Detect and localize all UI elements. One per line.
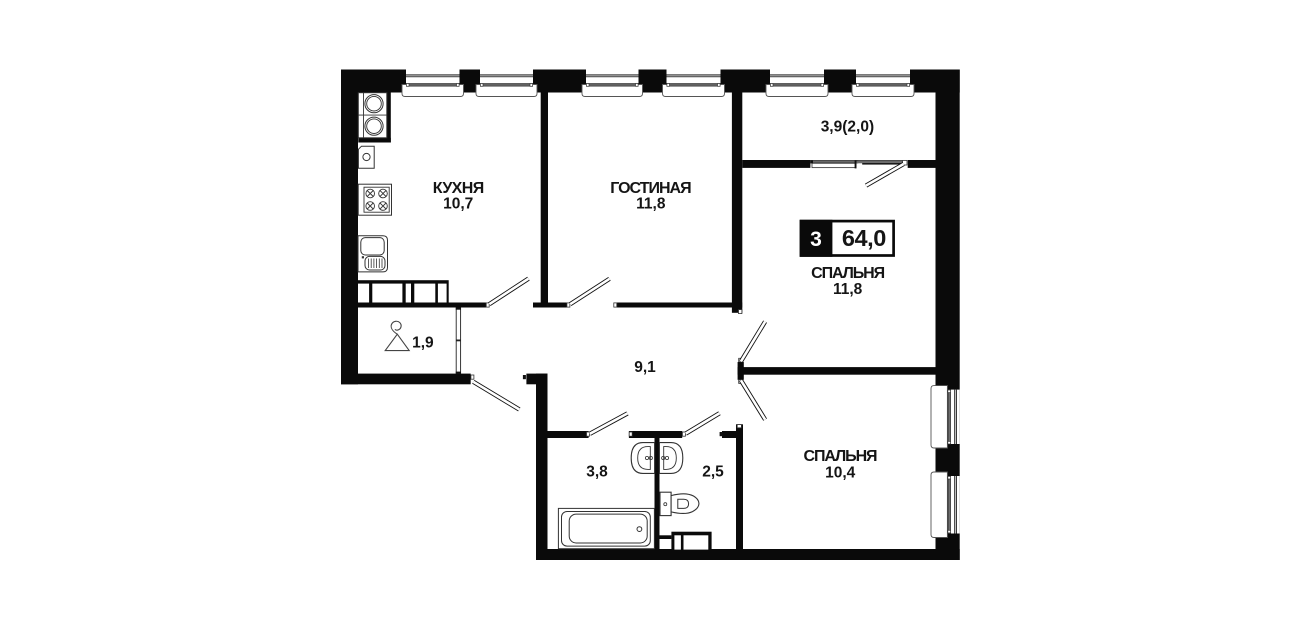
svg-text:СПАЛЬНЯ: СПАЛЬНЯ [804,448,877,465]
svg-text:3,9(2,0): 3,9(2,0) [821,119,874,136]
svg-text:11,8: 11,8 [636,196,666,213]
svg-text:3: 3 [810,228,822,251]
svg-text:9,1: 9,1 [634,359,656,376]
svg-text:СПАЛЬНЯ: СПАЛЬНЯ [811,265,884,282]
svg-text:10,4: 10,4 [825,465,856,482]
svg-text:64,0: 64,0 [842,225,886,251]
svg-text:2,5: 2,5 [702,464,724,481]
svg-text:11,8: 11,8 [833,281,863,298]
svg-text:1,9: 1,9 [412,334,434,351]
svg-text:3,8: 3,8 [586,464,608,481]
svg-text:10,7: 10,7 [443,196,473,213]
svg-text:ГОСТИНАЯ: ГОСТИНАЯ [610,180,691,197]
svg-text:КУХНЯ: КУХНЯ [433,180,484,197]
